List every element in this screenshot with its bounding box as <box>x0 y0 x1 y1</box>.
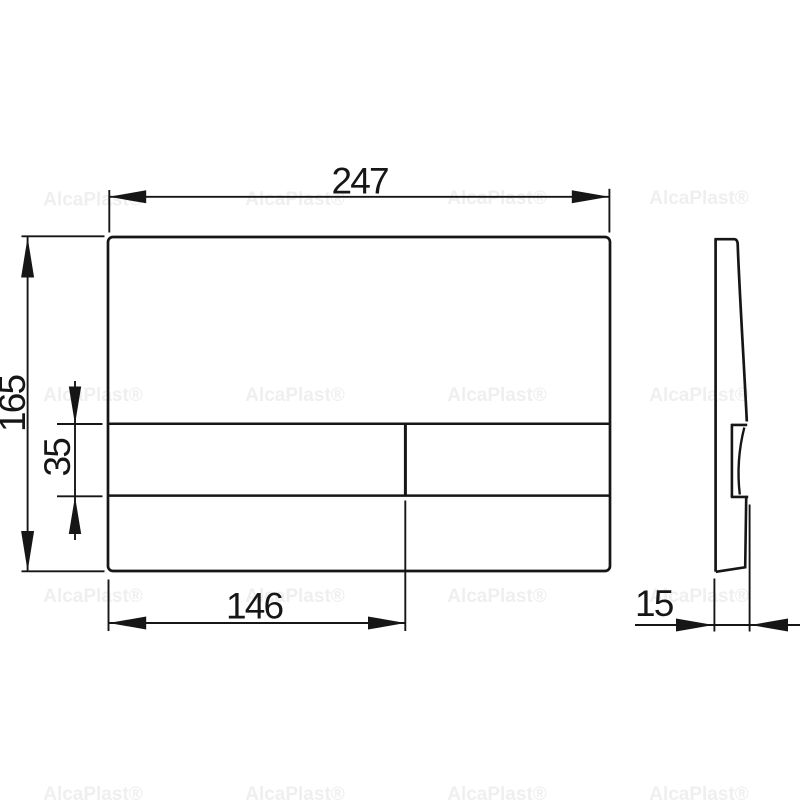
svg-text:AlcaPlast®: AlcaPlast® <box>43 784 143 800</box>
svg-text:AlcaPlast®: AlcaPlast® <box>245 784 345 800</box>
svg-text:146: 146 <box>226 586 283 627</box>
svg-text:AlcaPlast®: AlcaPlast® <box>447 784 547 800</box>
svg-text:AlcaPlast®: AlcaPlast® <box>43 385 143 406</box>
svg-text:15: 15 <box>635 583 674 624</box>
svg-text:AlcaPlast®: AlcaPlast® <box>447 188 547 209</box>
svg-text:AlcaPlast®: AlcaPlast® <box>447 385 547 406</box>
svg-text:AlcaPlast®: AlcaPlast® <box>447 586 547 607</box>
svg-text:AlcaPlast®: AlcaPlast® <box>43 586 143 607</box>
svg-text:35: 35 <box>37 438 78 477</box>
svg-text:247: 247 <box>332 161 389 202</box>
svg-text:AlcaPlast®: AlcaPlast® <box>649 385 749 406</box>
svg-text:AlcaPlast®: AlcaPlast® <box>649 188 749 209</box>
svg-text:165: 165 <box>0 374 33 432</box>
svg-text:AlcaPlast®: AlcaPlast® <box>245 385 345 406</box>
svg-text:AlcaPlast®: AlcaPlast® <box>245 189 345 210</box>
svg-text:AlcaPlast®: AlcaPlast® <box>649 784 749 800</box>
